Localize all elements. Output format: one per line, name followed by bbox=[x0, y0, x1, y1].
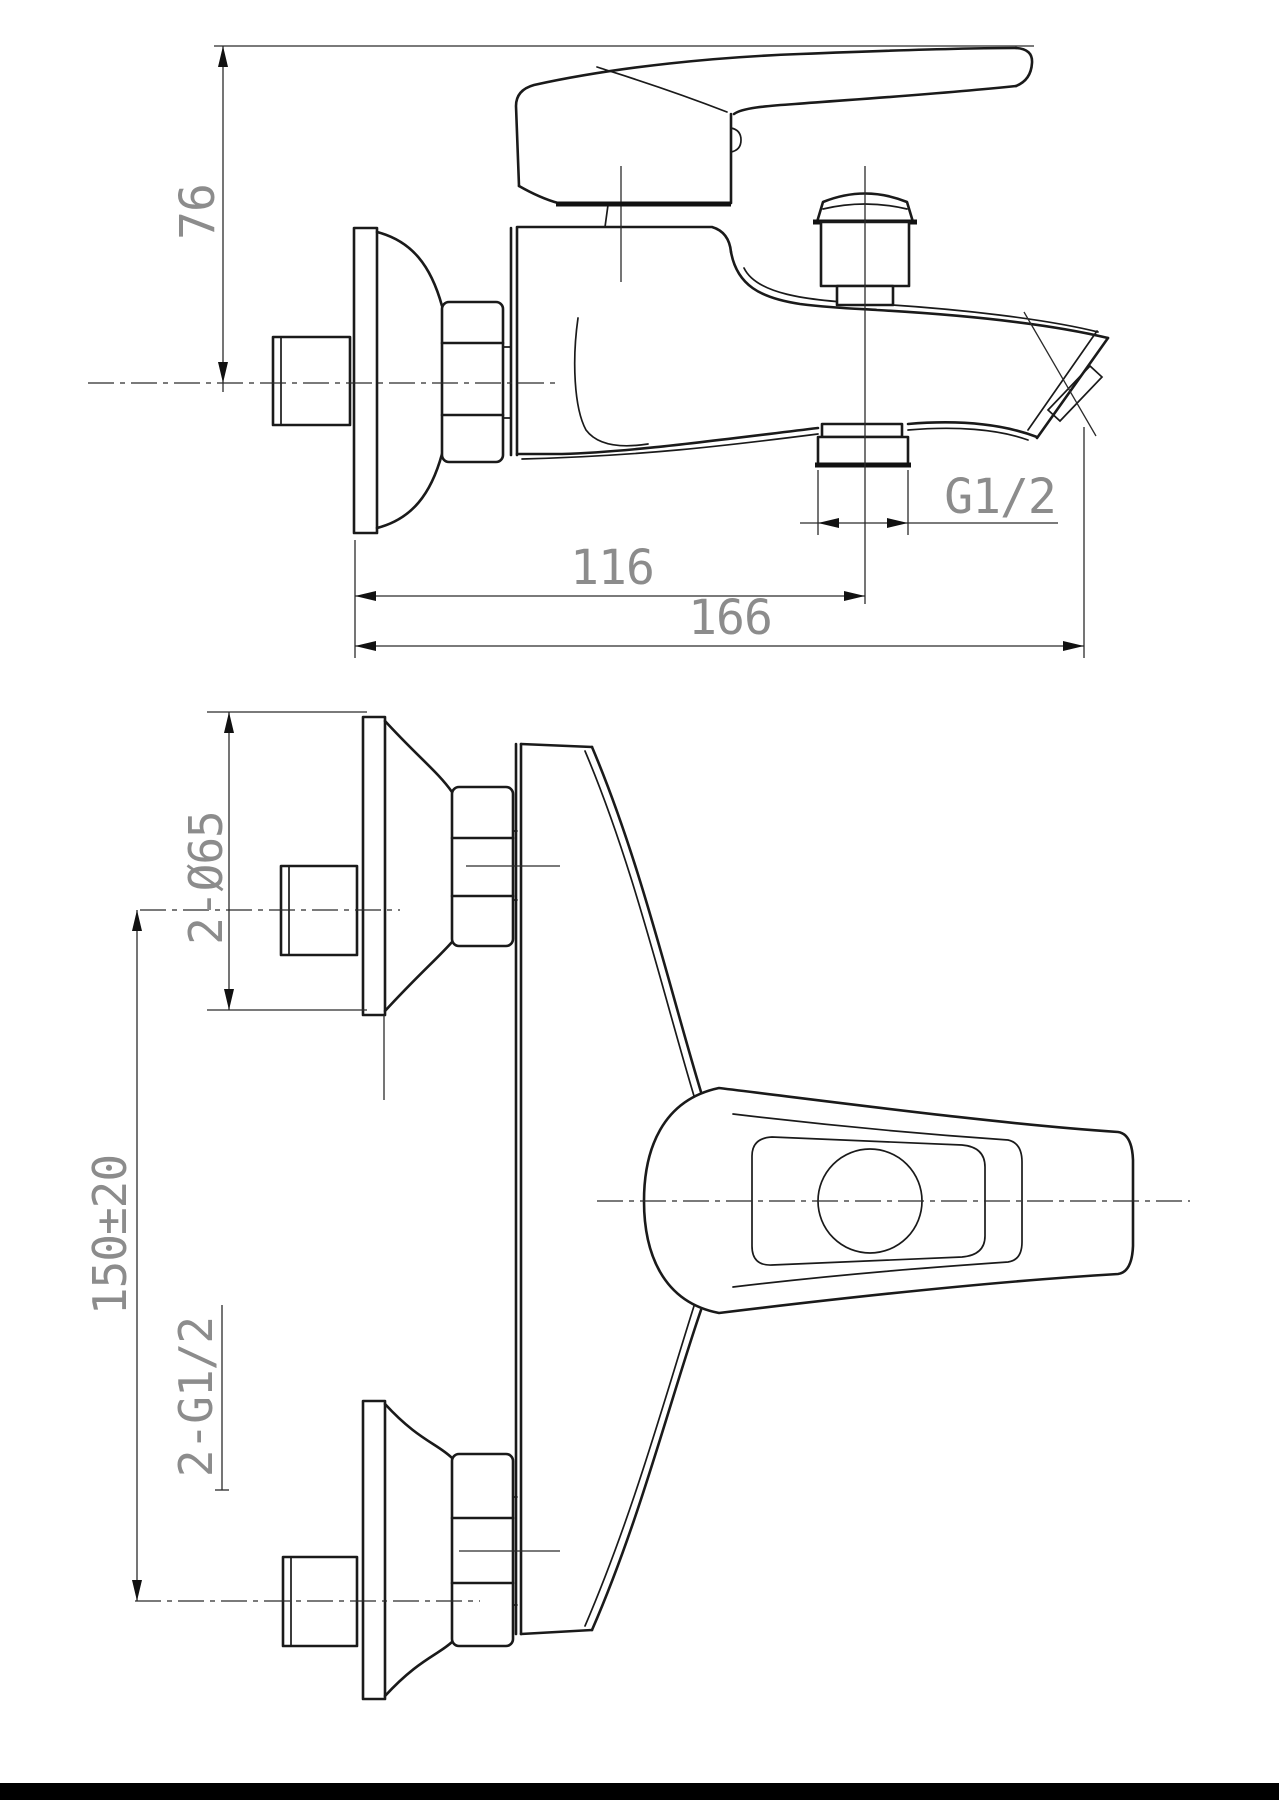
dim-166-label: 166 bbox=[688, 590, 772, 646]
plan-view-lower-inlet bbox=[283, 1401, 517, 1699]
dim-2xd65-label: 2-Ø65 bbox=[179, 811, 233, 944]
side-view-escutcheon-cone bbox=[377, 232, 442, 528]
side-view-spout bbox=[731, 252, 1108, 440]
technical-drawing: 76 G1/2 116 166 bbox=[0, 0, 1279, 1800]
side-view-drawing: 76 G1/2 116 166 bbox=[88, 46, 1108, 658]
side-view-flange bbox=[354, 228, 377, 533]
lever-hinge-detail bbox=[731, 128, 741, 152]
plan-view-upper-inlet bbox=[281, 717, 517, 1100]
thread-g12-label: G1/2 bbox=[944, 469, 1056, 525]
dim-76-label: 76 bbox=[170, 184, 226, 240]
dim-thread-g12: G1/2 bbox=[800, 469, 1058, 535]
side-view-hex-nut bbox=[442, 302, 511, 462]
thread-2xg12-label: 2-G1/2 bbox=[169, 1317, 223, 1477]
dim-116-label: 116 bbox=[570, 540, 654, 596]
footer-bar bbox=[0, 1783, 1279, 1800]
side-view-aerator bbox=[815, 424, 911, 465]
dim-150pm20-label: 150±20 bbox=[83, 1155, 137, 1315]
drawing-sheet: 76 G1/2 116 166 bbox=[0, 0, 1279, 1800]
dim-150pm20: 150±20 bbox=[83, 910, 142, 1601]
thread-2xg12: 2-G1/2 bbox=[169, 1305, 229, 1490]
side-view-body-back-face bbox=[511, 228, 517, 455]
side-view-valve-body bbox=[517, 166, 818, 459]
plan-view-drawing: 2-Ø65 150±20 2-G1/2 bbox=[83, 712, 1190, 1699]
side-view-inlet-pipe bbox=[273, 337, 350, 425]
dim-2xd65: 2-Ø65 bbox=[179, 712, 367, 1010]
dim-116: 116 bbox=[355, 540, 865, 658]
side-view-lever-handle bbox=[516, 48, 1032, 204]
